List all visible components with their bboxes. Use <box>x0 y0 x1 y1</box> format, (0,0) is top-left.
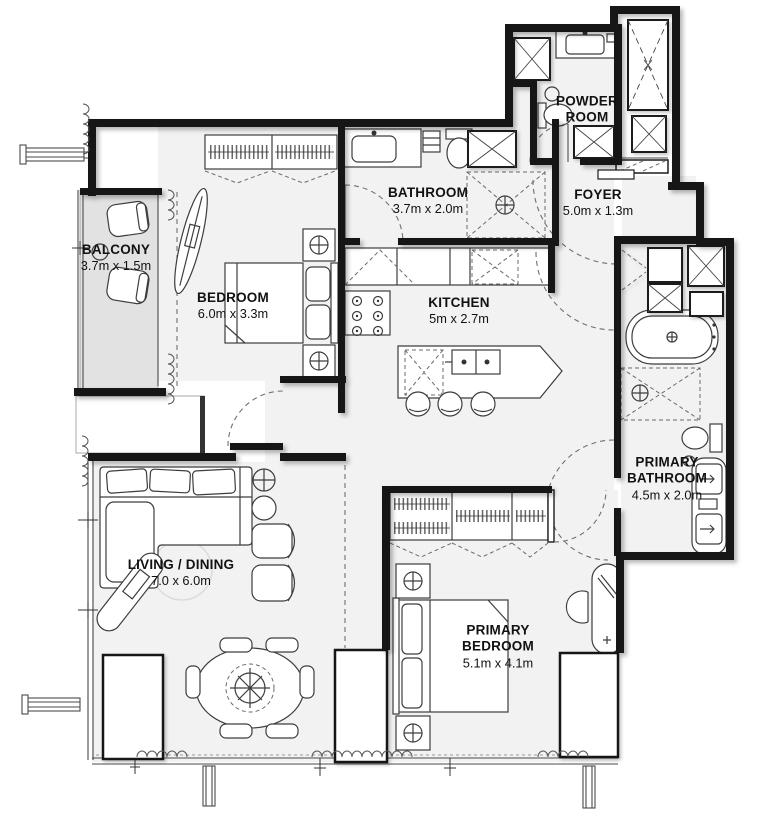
room-label-powder-room: POWDER ROOM <box>547 94 627 127</box>
room-name: LIVING / DINING <box>71 557 291 573</box>
room-label-bathroom: BATHROOM 3.7m x 2.0m <box>363 185 493 217</box>
room-label-primary-bedroom: PRIMARY BEDROOM 5.1m x 4.1m <box>433 623 563 672</box>
room-dims: 7.0 x 6.0m <box>71 573 291 589</box>
powder-sink-icon <box>556 31 616 59</box>
stool-icon <box>406 392 495 416</box>
floor-plan: BALCONY 3.7m x 1.5m BEDROOM 6.0m x 3.3m … <box>0 0 757 837</box>
room-dims: 6.0m x 3.3m <box>173 306 293 322</box>
room-dims: 3.7m x 2.0m <box>363 201 493 217</box>
bathtub-icon <box>626 310 718 364</box>
room-name: FOYER <box>543 187 653 203</box>
room-name: POWDER ROOM <box>547 94 627 127</box>
room-dims: 5.0m x 1.3m <box>543 203 653 219</box>
stove-icon <box>345 291 390 336</box>
room-dims: 4.5m x 2.0m <box>615 488 719 504</box>
room-name: KITCHEN <box>404 295 514 311</box>
bedroom-door-leaf <box>230 443 283 450</box>
duct-icon <box>648 284 682 312</box>
ledge-block <box>76 396 204 453</box>
shaft-box <box>690 292 723 316</box>
room-name: PRIMARY BATHROOM <box>615 455 719 488</box>
room-name: BEDROOM <box>173 290 293 306</box>
room-name: PRIMARY BEDROOM <box>433 623 563 656</box>
kitchen-island-icon <box>398 346 562 398</box>
duct-icon <box>468 131 516 167</box>
room-dims: 3.7m x 1.5m <box>66 258 166 274</box>
duct-icon <box>688 246 724 286</box>
duct-icon <box>574 126 614 158</box>
room-label-living-dining: LIVING / DINING 7.0 x 6.0m <box>71 557 291 589</box>
duct-icon <box>514 38 550 80</box>
room-label-balcony: BALCONY 3.7m x 1.5m <box>66 242 166 274</box>
room-dims: 5m x 2.7m <box>404 311 514 327</box>
duct-icon <box>632 116 666 152</box>
elevator-shaft-icon <box>628 20 668 110</box>
shaft-box <box>648 248 682 282</box>
room-label-primary-bathroom: PRIMARY BATHROOM 4.5m x 2.0m <box>615 455 719 504</box>
room-label-bedroom: BEDROOM 6.0m x 3.3m <box>173 290 293 322</box>
kitchen-counter-icon <box>345 248 552 285</box>
room-name: BATHROOM <box>363 185 493 201</box>
room-dims: 5.1m x 4.1m <box>433 656 563 672</box>
room-label-kitchen: KITCHEN 5m x 2.7m <box>404 295 514 327</box>
floor-plan-drawing <box>0 0 757 837</box>
dining-table-icon <box>196 648 304 728</box>
room-name: BALCONY <box>66 242 166 258</box>
room-label-foyer: FOYER 5.0m x 1.3m <box>543 187 653 219</box>
ledge-wall <box>200 396 205 453</box>
